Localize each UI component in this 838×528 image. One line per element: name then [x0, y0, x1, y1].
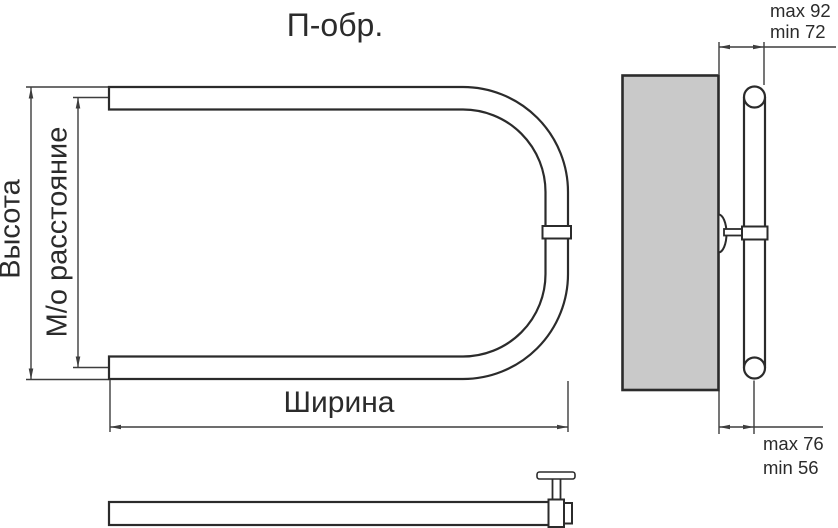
center-distance-arrow-bottom: [76, 357, 81, 368]
height-dimension-label: Высота: [0, 179, 26, 279]
depth-top-arrow-right: [753, 45, 764, 50]
drawing-title: П-обр.: [287, 9, 383, 41]
side-tube-top-cap: [744, 87, 765, 108]
center-distance-arrow-top: [76, 98, 81, 109]
height-arrow-bottom: [29, 369, 34, 380]
bottom-view: [109, 472, 575, 527]
valve-stem: [553, 479, 561, 501]
bracket-collar: [742, 227, 768, 240]
valve-body: [549, 500, 565, 528]
drawing-canvas: [0, 0, 838, 528]
depth-bottom-max-label: max 76: [763, 435, 824, 454]
height-arrow-top: [29, 88, 34, 99]
center-distance-dimension-lines: [73, 98, 109, 368]
depth-bottom-dimension-lines: [719, 381, 823, 435]
depth-bottom-arrow-right: [743, 425, 754, 430]
wall: [623, 76, 719, 391]
width-arrow-right: [557, 425, 568, 430]
side-view: [623, 76, 768, 391]
width-dimension-label: Ширина: [284, 388, 395, 418]
valve-end-cap: [564, 503, 572, 524]
front-view: [109, 87, 571, 379]
depth-top-dimension-lines: [719, 42, 836, 85]
pipe-coupling: [543, 226, 572, 239]
depth-bottom-arrow-left: [719, 425, 730, 430]
depth-top-max-label: max 92: [770, 2, 831, 21]
side-tube-bottom-cap: [744, 358, 765, 379]
valve-handle: [537, 472, 575, 479]
width-arrow-left: [110, 425, 121, 430]
center-distance-dimension-label: М/о расстояние: [44, 127, 73, 338]
depth-top-arrow-left: [719, 45, 730, 50]
depth-top-min-label: min 72: [770, 23, 826, 42]
rail-tube-outline: [109, 87, 568, 379]
towel-rail-dimension-drawing: П-обр. Высота М/о расстояние Ширина max …: [0, 0, 838, 528]
depth-bottom-min-label: min 56: [763, 459, 819, 478]
bottom-tube: [109, 502, 549, 525]
